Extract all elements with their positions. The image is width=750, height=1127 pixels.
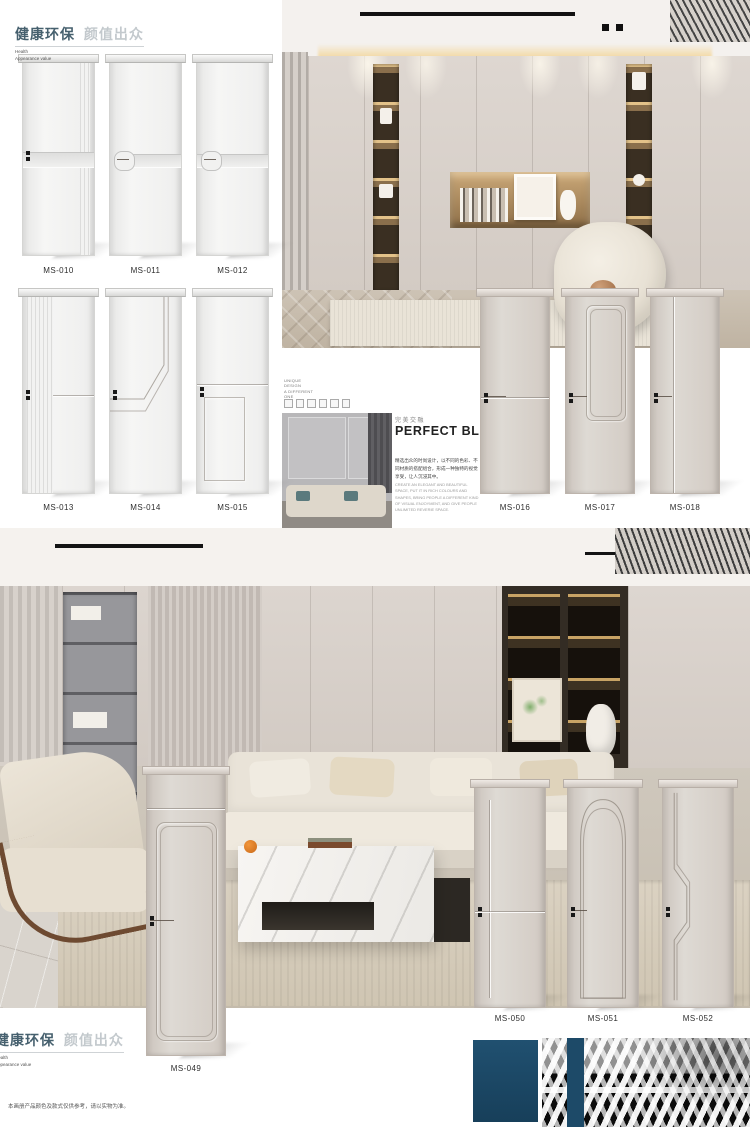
logo-chinese: 健康环保 颜值出众	[0, 1030, 124, 1053]
door-code-label: MS-015	[196, 503, 269, 512]
door-handle	[478, 907, 482, 911]
door-ms-016	[480, 292, 550, 494]
door-frame	[563, 779, 643, 788]
door-leaf	[480, 292, 550, 494]
cert-badge-icon	[319, 399, 328, 408]
angled-groove	[110, 293, 181, 493]
door-ms-049	[146, 770, 226, 1056]
logo-text-secondary: 颜值出众	[64, 1032, 124, 1048]
dark-display-cabinet	[502, 586, 628, 768]
door-frame	[142, 766, 230, 775]
door-handle	[484, 393, 488, 397]
side-caption: UNIQUE DESIGN A DIFFERENT ONE	[284, 378, 313, 400]
cert-badge-icon	[307, 399, 316, 408]
handle-recess	[114, 151, 134, 171]
cert-badge-icon	[330, 399, 339, 408]
door-leaf	[474, 783, 546, 1008]
door-handle	[26, 390, 30, 394]
books	[73, 712, 107, 728]
door-code-label: MS-016	[480, 503, 550, 512]
door-leaf	[650, 292, 720, 494]
logo-en-line2: Appearance value	[15, 56, 144, 63]
logo-text-secondary: 颜值出众	[84, 26, 144, 42]
door-leaf	[196, 292, 269, 494]
blue-bar	[567, 1038, 584, 1127]
wall-panel	[628, 586, 750, 768]
marble-coffee-table	[238, 846, 434, 942]
groove-line	[53, 395, 94, 396]
door-code-label: MS-052	[662, 1014, 734, 1023]
door-code-label: MS-049	[146, 1064, 226, 1073]
door-frame	[658, 779, 738, 788]
logo-english: Health Appearance value	[0, 1055, 124, 1068]
door-frame	[561, 288, 639, 297]
door-leaf	[146, 770, 226, 1056]
door-handle	[200, 387, 204, 391]
logo-chinese: 健康环保 颜值出众	[15, 24, 144, 47]
arched-moulding	[568, 784, 638, 1007]
window-blinds	[0, 586, 62, 762]
door-frame	[476, 288, 554, 297]
catalog-page: MS-07 健康环保 颜值出众 Health Appearance value	[0, 0, 750, 1127]
groove-band	[127, 154, 181, 168]
art-frame	[514, 174, 556, 220]
brand-logo: 健康环保 颜值出众 Health Appearance value	[15, 24, 144, 62]
pillow	[329, 756, 395, 797]
door-ms-012	[196, 58, 269, 256]
track-light	[55, 544, 203, 548]
table-lamp	[560, 190, 576, 220]
table-inset-shelf	[262, 902, 374, 930]
door-leaf	[109, 292, 182, 494]
inset-panel	[204, 397, 245, 481]
wall-panel	[288, 417, 346, 479]
feature-body-cn: 精选出众的时尚设计，以不同的色彩、不同材质的搭配组合，形成一种独特的视觉享受，让…	[395, 457, 482, 481]
door-frame	[192, 54, 273, 63]
door-leaf	[22, 58, 95, 256]
chevron-groove	[663, 784, 733, 1007]
feature-title-cn: 完美交融	[395, 415, 425, 424]
door-frame	[192, 288, 273, 297]
door-ms-017	[565, 292, 635, 494]
door-handle	[150, 916, 154, 920]
rabbit-figure	[586, 704, 616, 756]
door-handle	[569, 393, 573, 397]
door-leaf	[196, 58, 269, 256]
groove-line	[197, 384, 268, 385]
door-frame	[18, 288, 99, 297]
fluted-strip	[27, 293, 53, 493]
spot-lights	[602, 24, 609, 31]
inset-panel	[156, 822, 217, 1041]
cert-badge-icon	[342, 399, 351, 408]
door-ms-051	[567, 783, 639, 1008]
ac-vent	[670, 0, 750, 42]
inset-panel	[586, 305, 625, 421]
groove-line	[147, 808, 225, 809]
wall-panel	[348, 417, 370, 479]
lit-display-niche	[450, 172, 590, 228]
footer-disclaimer: 本画册产品颜色及款式仅供参考，请以实物为准。	[8, 1102, 129, 1110]
door-code-label: MS-013	[22, 503, 95, 512]
ac-vent	[615, 528, 750, 574]
brand-logo-bottom: 健康环保 颜值出众 Health Appearance value	[0, 1030, 124, 1068]
logo-text-primary: 健康环保	[15, 26, 75, 42]
groove-line	[475, 911, 545, 912]
logo-en-line2: Appearance value	[0, 1062, 124, 1069]
vase	[379, 184, 393, 198]
bear-figure	[632, 72, 646, 90]
cert-badge-icon	[284, 399, 293, 408]
flower-art	[512, 678, 562, 742]
door-code-label: MS-014	[109, 503, 182, 512]
door-leaf	[662, 783, 734, 1008]
door-code-label: MS-051	[567, 1014, 639, 1023]
handle-line	[150, 920, 174, 921]
door-handle	[26, 151, 30, 155]
groove-line	[673, 293, 674, 493]
door-leaf	[567, 783, 639, 1008]
teal-cushion	[344, 491, 358, 501]
door-frame	[646, 288, 724, 297]
door-ms-010	[22, 58, 95, 256]
door-code-label: MS-011	[109, 266, 182, 275]
door-handle	[654, 393, 658, 397]
door-handle	[571, 907, 575, 911]
door-handle	[666, 907, 670, 911]
door-code-label: MS-018	[650, 503, 720, 512]
door-frame	[105, 288, 186, 297]
cert-badge-icon	[296, 399, 305, 408]
groove-line	[481, 397, 549, 398]
display-shelf-column	[373, 64, 399, 292]
sofa-photo	[282, 413, 392, 531]
books	[71, 606, 101, 620]
door-frame	[470, 779, 550, 788]
door-ms-011	[109, 58, 182, 256]
groove-line	[489, 800, 490, 998]
door-code-label: MS-017	[565, 503, 635, 512]
table-books	[308, 838, 352, 848]
door-ms-014	[109, 292, 182, 494]
door-handle	[204, 159, 216, 160]
door-leaf	[109, 58, 182, 256]
fluted-wall-panel	[148, 586, 262, 772]
feature-body-en: CREATE AN ELEGANT AND BEAUTIFUL SPACE, P…	[395, 482, 481, 513]
curtain	[368, 413, 392, 493]
door-ms-013	[22, 292, 95, 494]
books	[460, 188, 508, 222]
door-handle	[117, 159, 129, 160]
logo-text-primary: 健康环保	[0, 1032, 55, 1048]
door-handle	[113, 390, 117, 394]
certification-badges	[284, 399, 350, 408]
handle-recess	[201, 151, 221, 171]
globe	[633, 174, 645, 186]
door-ms-015	[196, 292, 269, 494]
blue-swatch	[473, 1040, 538, 1122]
door-leaf	[565, 292, 635, 494]
groove-band	[23, 152, 94, 168]
door-leaf	[22, 292, 95, 494]
door-code-label: MS-012	[196, 266, 269, 275]
door-ms-050	[474, 783, 546, 1008]
bust-sculpture	[380, 108, 392, 124]
pillow	[249, 758, 311, 798]
door-ms-018	[650, 292, 720, 494]
track-light	[360, 12, 575, 16]
door-ms-052	[662, 783, 734, 1008]
door-code-label: MS-010	[22, 266, 95, 275]
orange-fruit	[244, 840, 257, 853]
door-code-label: MS-050	[474, 1014, 546, 1023]
logo-english: Health Appearance value	[15, 49, 144, 62]
